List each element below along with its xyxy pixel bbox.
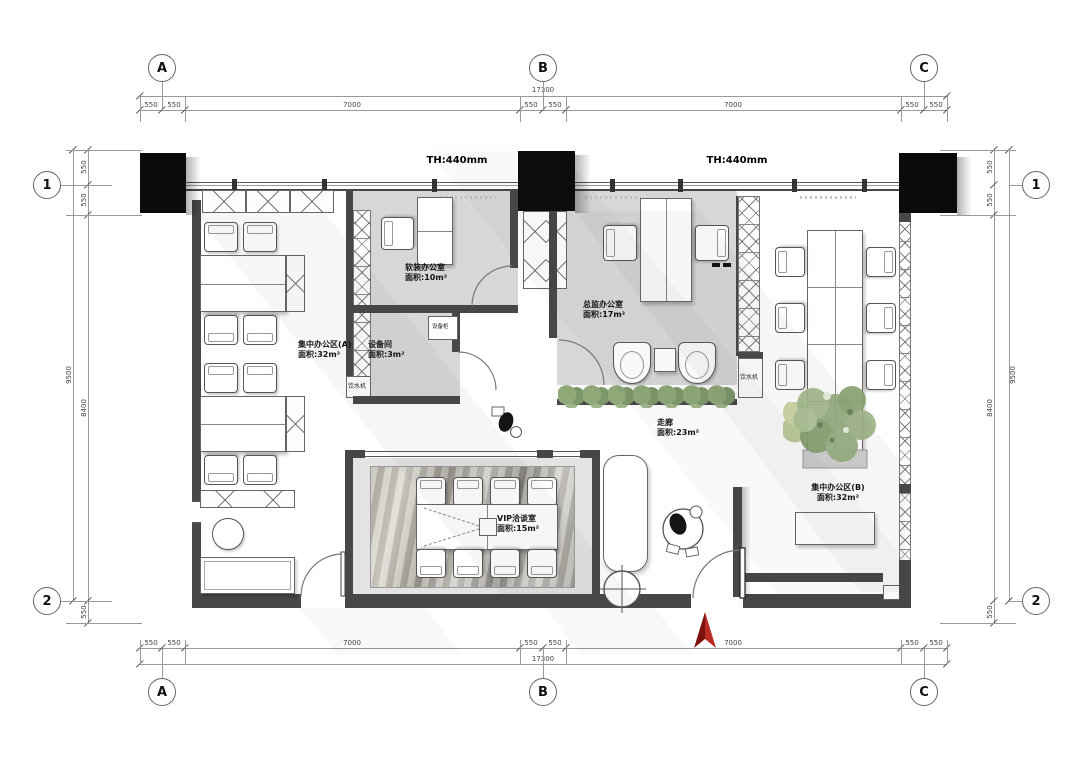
window-mullion bbox=[678, 179, 683, 192]
dim-value: 550 bbox=[905, 101, 918, 109]
office-a-desk-2 bbox=[200, 396, 286, 452]
office-chair bbox=[243, 455, 277, 485]
desk-accessory bbox=[712, 263, 720, 267]
office-chair bbox=[775, 247, 805, 277]
th-label-left: TH:440mm bbox=[427, 155, 488, 166]
dim-value: 550 bbox=[524, 101, 537, 109]
office-a-desk-1 bbox=[200, 255, 286, 312]
water-dispenser-left-label: 饮水机 bbox=[348, 383, 366, 390]
dim-value: 7000 bbox=[343, 639, 361, 647]
reception-table bbox=[795, 512, 875, 545]
water-dispenser-right-label: 饮水机 bbox=[740, 374, 758, 381]
planter-bush bbox=[683, 384, 710, 408]
north-arrow-icon bbox=[694, 612, 716, 648]
director-right-cabinets bbox=[738, 196, 760, 352]
right-wall-hatched bbox=[899, 213, 911, 592]
office-b-long-desk bbox=[807, 230, 863, 458]
dim-right-total: 9500 bbox=[1009, 366, 1017, 384]
dim-value: 8400 bbox=[80, 399, 88, 417]
th-label-right: TH:440mm bbox=[707, 155, 768, 166]
room-name: 集中办公区(B) bbox=[811, 483, 864, 493]
planter-bush bbox=[658, 384, 685, 408]
office-a-round-table bbox=[212, 518, 244, 550]
soft-office-right-wall bbox=[510, 191, 518, 268]
dim-value: 550 bbox=[929, 639, 942, 647]
dim-value: 550 bbox=[929, 101, 942, 109]
director-guest-chair bbox=[695, 225, 729, 261]
room-name: 总监办公室 bbox=[583, 300, 625, 310]
column-a1 bbox=[140, 153, 186, 213]
office-chair bbox=[243, 222, 277, 252]
vip-chair bbox=[453, 477, 483, 506]
grid-bubble-a-top: A bbox=[148, 54, 176, 82]
closet-below-column-b bbox=[523, 211, 567, 289]
director-left-wall bbox=[549, 191, 557, 338]
vip-top-pier bbox=[537, 450, 553, 458]
column-shadow bbox=[575, 155, 591, 213]
vip-chair bbox=[416, 477, 446, 506]
corridor-person-table bbox=[663, 506, 703, 557]
bottom-exterior-wall bbox=[192, 594, 906, 608]
grid-bubble-c-top: C bbox=[910, 54, 938, 82]
grid-bubble-1-left: 1 bbox=[33, 171, 61, 199]
dim-value: 550 bbox=[548, 101, 561, 109]
lounge-tub-chair bbox=[613, 342, 651, 384]
lounge-tub-chair bbox=[678, 342, 716, 384]
window-mullion bbox=[432, 179, 437, 192]
right-wall-cap bbox=[899, 560, 911, 608]
office-a-desk-1-end bbox=[286, 255, 305, 312]
vip-chair bbox=[490, 477, 520, 506]
reception-horizontal-wall bbox=[741, 573, 883, 582]
room-name: 软装办公室 bbox=[405, 263, 447, 273]
vip-top-pier bbox=[345, 450, 365, 458]
vip-chair bbox=[527, 477, 557, 506]
room-name: VIP洽谈室 bbox=[497, 514, 539, 524]
lounge-side-table bbox=[654, 348, 676, 372]
equip-room-bottom-wall bbox=[353, 396, 460, 404]
director-right-wall-line bbox=[736, 196, 738, 356]
dim-line-left-segments bbox=[88, 150, 89, 623]
room-area: 面积:3m² bbox=[368, 350, 405, 360]
planter-bush bbox=[608, 384, 635, 408]
soft-office-bottom-wall bbox=[353, 305, 518, 313]
grid-bubble-2-left: 2 bbox=[33, 587, 61, 615]
dim-value: 550 bbox=[167, 639, 180, 647]
room-name: 集中办公区(A) bbox=[298, 340, 352, 350]
dim-line-left-total bbox=[73, 150, 74, 601]
door-arc-equip-room bbox=[458, 352, 496, 390]
soft-office-desk bbox=[417, 197, 453, 265]
vip-room-label: VIP洽谈室 面积:15m² bbox=[497, 514, 539, 534]
right-wall-cap bbox=[899, 484, 911, 493]
planter-bush bbox=[708, 384, 735, 408]
dim-value: 550 bbox=[144, 101, 157, 109]
dim-value: 7000 bbox=[343, 101, 361, 109]
dim-value: 550 bbox=[167, 101, 180, 109]
dim-value: 7000 bbox=[724, 101, 742, 109]
office-a-sideboard bbox=[200, 490, 295, 508]
column-b1 bbox=[518, 151, 575, 211]
room-name: 走廊 bbox=[657, 418, 699, 428]
room-area: 面积:32m² bbox=[811, 493, 864, 503]
office-chair bbox=[775, 360, 805, 390]
office-chair bbox=[204, 222, 238, 252]
office-a-label: 集中办公区(A) 面积:32m² bbox=[298, 340, 352, 360]
window-mullion bbox=[610, 179, 615, 192]
office-a-desk-2-end bbox=[286, 396, 305, 452]
dim-value: 550 bbox=[986, 193, 994, 206]
vip-chair bbox=[527, 549, 557, 578]
office-chair bbox=[866, 247, 896, 277]
right-wall-cap bbox=[899, 213, 911, 222]
office-a-top-cabinet bbox=[290, 190, 334, 213]
soft-office-label: 软装办公室 面积:10m² bbox=[405, 263, 447, 283]
director-office-label: 总监办公室 面积:17m² bbox=[583, 300, 625, 320]
room-name: 设备间 bbox=[368, 340, 405, 350]
office-chair bbox=[243, 363, 277, 393]
office-chair bbox=[204, 363, 238, 393]
room-area: 面积:23m² bbox=[657, 428, 699, 438]
grid-bubble-2-right: 2 bbox=[1022, 587, 1050, 615]
dim-value: 550 bbox=[524, 639, 537, 647]
room-area: 面积:17m² bbox=[583, 310, 625, 320]
desk-accessory bbox=[723, 263, 731, 267]
director-chair bbox=[603, 225, 637, 261]
vip-right-wall bbox=[592, 450, 600, 600]
dim-line-right-segments bbox=[994, 150, 995, 623]
micro-dimension-marks bbox=[585, 196, 641, 199]
director-desk bbox=[640, 198, 692, 302]
window-mullion bbox=[862, 179, 867, 192]
grid-bubble-b-bottom: B bbox=[529, 678, 557, 706]
grid-bubble-1-right: 1 bbox=[1022, 171, 1050, 199]
equip-cabinet-label: 设备柜 bbox=[432, 324, 449, 331]
office-chair bbox=[204, 315, 238, 345]
office-chair bbox=[204, 455, 238, 485]
office-chair bbox=[866, 360, 896, 390]
column-shadow bbox=[957, 157, 972, 215]
grid-bubble-b-top: B bbox=[529, 54, 557, 82]
office-a-top-cabinet bbox=[246, 190, 290, 213]
grid-bubble-a-bottom: A bbox=[148, 678, 176, 706]
dim-value: 550 bbox=[986, 605, 994, 618]
office-a-top-cabinet bbox=[202, 190, 246, 213]
equip-room-label: 设备间 面积:3m² bbox=[368, 340, 405, 360]
column-c1 bbox=[899, 153, 957, 213]
office-b-label: 集中办公区(B) 面积:32m² bbox=[811, 483, 864, 503]
dim-value: 550 bbox=[986, 160, 994, 173]
small-plant bbox=[783, 402, 809, 444]
office-chair bbox=[775, 303, 805, 333]
office-chair bbox=[243, 315, 277, 345]
dim-value: 550 bbox=[80, 160, 88, 173]
vip-chair bbox=[453, 549, 483, 578]
vip-top-glazing bbox=[353, 451, 592, 457]
corridor-lounge-bench bbox=[603, 455, 648, 572]
door-arc-office-a bbox=[301, 554, 343, 596]
vip-chair bbox=[490, 549, 520, 578]
vip-left-wall bbox=[345, 450, 353, 600]
office-a-door-opening bbox=[301, 594, 345, 608]
floor-plan-canvas: 集中办公区(A) 面积:32m² 软装办公室 面积:10m² 设备间 面积:3m… bbox=[0, 0, 1080, 764]
office-a-sofa-bench bbox=[200, 557, 295, 594]
walking-person bbox=[492, 407, 522, 438]
dim-value: 550 bbox=[548, 639, 561, 647]
planter-bush bbox=[583, 384, 610, 408]
grid-bubble-c-bottom: C bbox=[910, 678, 938, 706]
room-area: 面积:15m² bbox=[497, 524, 539, 534]
dim-value: 550 bbox=[144, 639, 157, 647]
dim-value: 8400 bbox=[986, 399, 994, 417]
dim-value: 7000 bbox=[724, 639, 742, 647]
room-area: 面积:10m² bbox=[405, 273, 447, 283]
vip-table-center-module bbox=[479, 518, 497, 536]
vip-chair bbox=[416, 549, 446, 578]
planter-bush bbox=[633, 384, 660, 408]
office-chair bbox=[866, 303, 896, 333]
dim-value: 550 bbox=[80, 605, 88, 618]
soft-office-chair bbox=[381, 217, 414, 250]
dim-value: 550 bbox=[80, 193, 88, 206]
micro-dimension-marks bbox=[800, 196, 856, 199]
spine-wall bbox=[346, 191, 353, 398]
room-area: 面积:32m² bbox=[298, 350, 352, 360]
column-shadow bbox=[186, 157, 201, 215]
window-mullion bbox=[792, 179, 797, 192]
dim-value: 550 bbox=[905, 639, 918, 647]
dim-left-total: 9500 bbox=[65, 366, 73, 384]
corridor-label: 走廊 面积:23m² bbox=[657, 418, 699, 438]
planter-bush bbox=[558, 384, 585, 408]
